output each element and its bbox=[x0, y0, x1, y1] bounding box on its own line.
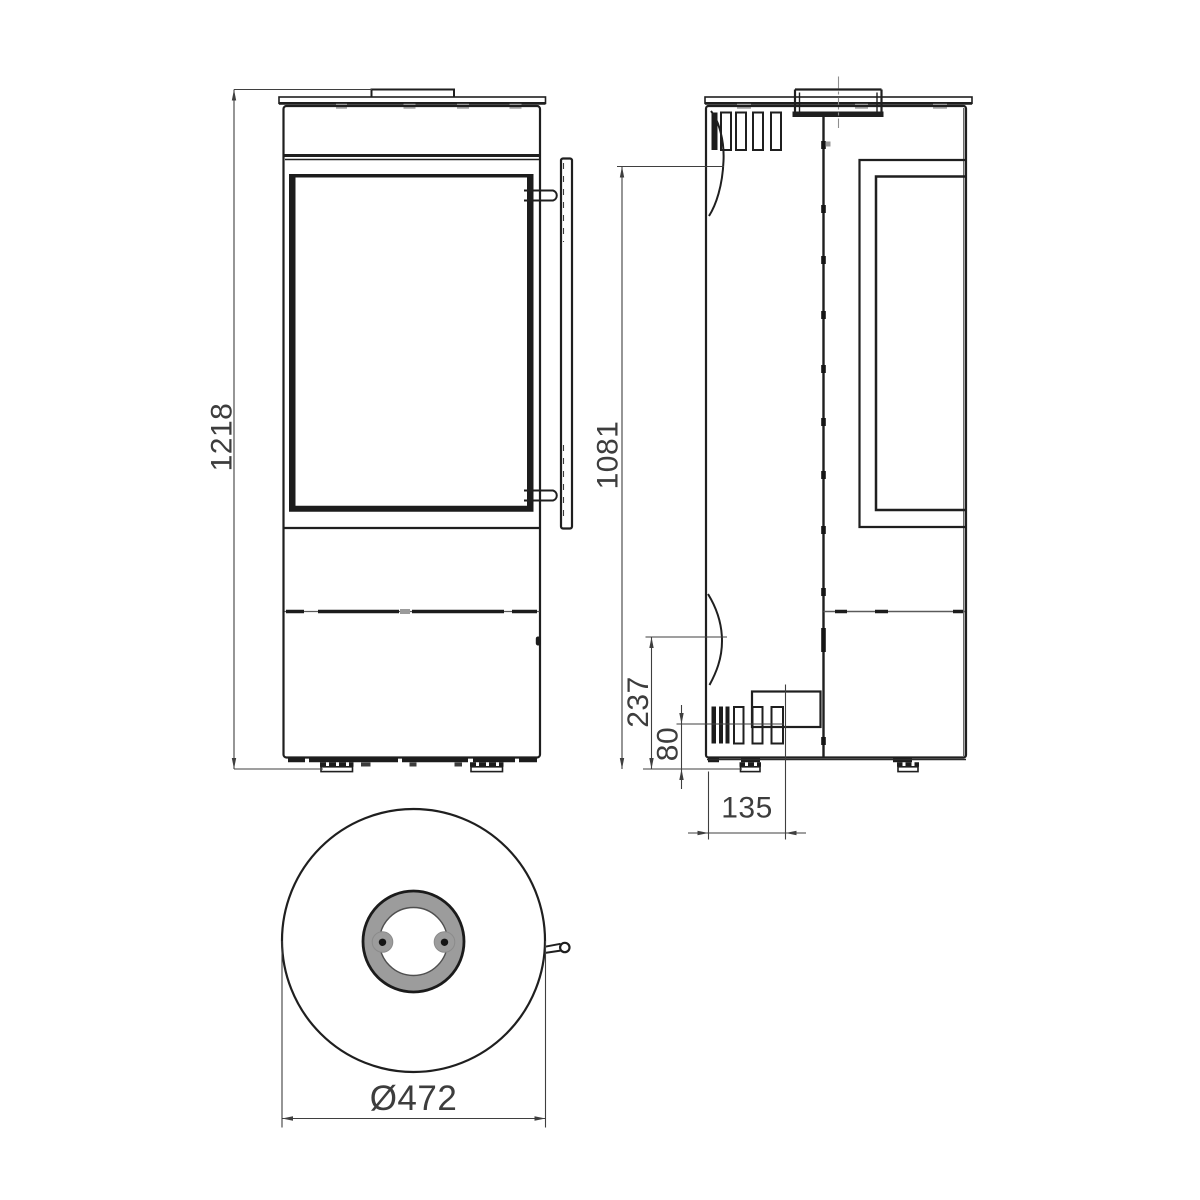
door-latch bbox=[536, 637, 541, 646]
dim-label-front-height: 1218 bbox=[206, 403, 239, 472]
front-view bbox=[279, 90, 572, 772]
side-view bbox=[705, 77, 972, 772]
stove-body-front bbox=[284, 106, 541, 758]
door-handle-rail bbox=[561, 159, 572, 529]
door-handle-top-view bbox=[545, 943, 570, 953]
base-band-side bbox=[707, 760, 966, 761]
dimension-intake-height: 80 bbox=[652, 705, 785, 789]
hinge-pin bbox=[826, 142, 831, 147]
dimension-side-height: 1081 bbox=[592, 167, 725, 770]
door-glass-frame bbox=[289, 174, 534, 512]
flue-stub-front bbox=[372, 90, 455, 98]
drawing-canvas: 1218 1081 237 80 bbox=[0, 0, 1200, 1200]
top-view bbox=[282, 809, 570, 1072]
dim-label-intake-height: 80 bbox=[652, 727, 685, 761]
body-groove bbox=[285, 609, 540, 614]
dim-label-side-height: 1081 bbox=[592, 421, 625, 490]
screw-left bbox=[379, 939, 386, 946]
foot-front-right bbox=[470, 765, 504, 772]
dim-label-intake-offset: 135 bbox=[721, 792, 773, 825]
base-tabs-front bbox=[361, 763, 462, 767]
air-vents-bottom bbox=[712, 707, 784, 744]
front-curve-bottom bbox=[708, 594, 722, 685]
technical-drawing-stove: 1218 1081 237 80 bbox=[0, 0, 1200, 1200]
foot-side-left bbox=[740, 765, 762, 772]
foot-front-left bbox=[320, 765, 354, 772]
screw-right bbox=[441, 939, 448, 946]
dimension-front-height: 1218 bbox=[206, 90, 373, 770]
dim-label-lower-section: 237 bbox=[622, 676, 655, 728]
stove-body-side bbox=[706, 106, 966, 758]
side-window-frame bbox=[876, 177, 965, 511]
dim-label-diameter: Ø472 bbox=[370, 1079, 458, 1118]
foot-side-right bbox=[897, 765, 919, 772]
